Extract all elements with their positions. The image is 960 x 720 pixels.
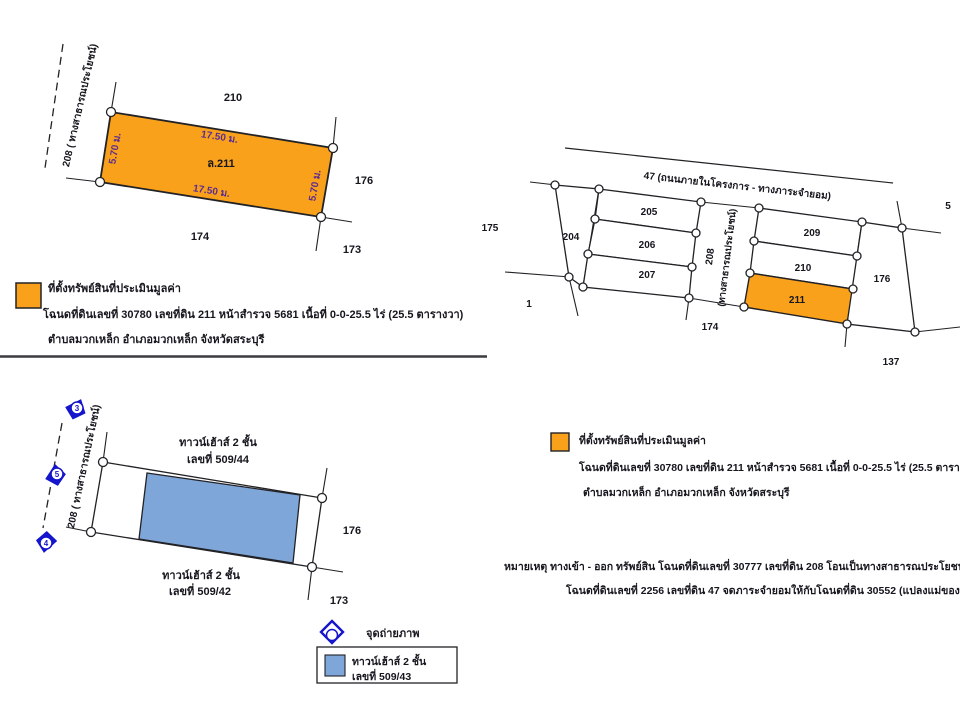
survey-marker-circle: [697, 198, 705, 206]
neighbor-210: 210: [224, 92, 242, 104]
location-line: ตำบลมวกเหล็ก อำเภอมวกเหล็ก จังหวัดสระบุร…: [48, 332, 264, 347]
plot-diagrams-canvas: 208 ( ทางสาธารณประโยชน์) 17.50 ม. 17.50 …: [0, 0, 960, 720]
survey-marker-circle: [107, 108, 116, 117]
map-label-5: 5: [945, 201, 951, 212]
orange-swatch: [551, 433, 569, 451]
house-top-line1: ทาวน์เฮ้าส์ 2 ชั้น: [179, 434, 257, 449]
map-label-175: 175: [482, 223, 499, 234]
legend-left: ที่ตั้งทรัพย์สินที่ประเมินมูลค่า โฉนดที่…: [0, 280, 487, 357]
survey-marker-circle: [849, 285, 857, 293]
neighbor-173: 173: [343, 244, 361, 256]
townhouse-legend-line1: ทาวน์เฮ้าส์ 2 ชั้น: [352, 653, 427, 668]
map-label-1: 1: [526, 299, 532, 310]
neighbor-176: 176: [355, 175, 373, 187]
map-label-207: 207: [639, 270, 656, 281]
map-label-174: 174: [702, 322, 719, 333]
map-label-206: 206: [639, 240, 656, 251]
parcel-id-label: ล.211: [207, 158, 235, 170]
survey-marker-circle: [584, 250, 592, 258]
survey-tick: [316, 217, 321, 251]
remark-note: หมายเหตุ ทางเข้า - ออก ทรัพย์สิน โฉนดที่…: [504, 558, 960, 597]
survey-tick: [902, 228, 941, 233]
survey-marker-circle: [329, 144, 338, 153]
photo-point-marker-5: 5: [44, 463, 67, 487]
survey-marker-circle: [96, 178, 105, 187]
neighbor-176: 176: [343, 525, 361, 537]
marker-number: 5: [55, 470, 60, 479]
road-208-top-crossing: [701, 202, 759, 208]
note-line-2: โฉนดที่ดินเลขที่ 2256 เลขที่ดิน 47 จดภาร…: [565, 582, 960, 597]
road-208-name: (ทางสาธารณประโยชน์): [715, 208, 739, 307]
neighbor-174: 174: [191, 231, 210, 243]
deed-info-line: โฉนดที่ดินเลขที่ 30780 เลขที่ดิน 211 หน้…: [42, 306, 464, 321]
legend-bottom: จุดถ่ายภาพ ทาวน์เฮ้าส์ 2 ชั้น เลขที่ 509…: [317, 621, 457, 683]
survey-marker-circle: [551, 181, 559, 189]
survey-marker-circle: [591, 215, 599, 223]
road-208-number: 208: [704, 247, 717, 265]
marker-circle: [327, 630, 338, 641]
marker-number: 3: [75, 404, 80, 413]
legend-title: ที่ตั้งทรัพย์สินที่ประเมินมูลค่า: [48, 280, 181, 296]
road-47-line: [565, 148, 893, 183]
townhouse-building-footprint: [139, 473, 300, 563]
survey-marker-circle: [911, 328, 919, 336]
survey-marker-circle: [308, 563, 317, 572]
photo-point-label: จุดถ่ายภาพ: [366, 628, 420, 641]
house-bottom-line1: ทาวน์เฮ้าส์ 2 ชั้น: [162, 567, 240, 582]
public-road-dashed-line: [45, 44, 63, 168]
blue-swatch: [325, 655, 345, 676]
note-line-1: หมายเหตุ ทางเข้า - ออก ทรัพย์สิน โฉนดที่…: [504, 558, 960, 574]
photo-point-marker-3: 3: [62, 394, 90, 423]
map-label-210: 210: [795, 263, 812, 274]
survey-marker-circle: [565, 273, 573, 281]
survey-tick: [505, 272, 570, 277]
photo-point-legend-icon: [321, 621, 343, 643]
survey-marker-circle: [692, 229, 700, 237]
orange-swatch: [16, 283, 41, 308]
survey-marker-circle: [746, 269, 754, 277]
house-bottom-line2: เลขที่ 509/42: [169, 583, 231, 598]
deed-info-line: โฉนดที่ดินเลขที่ 30780 เลขที่ดิน 211 หน้…: [578, 459, 960, 474]
survey-marker-circle: [843, 320, 851, 328]
survey-marker-circle: [87, 528, 96, 537]
location-line: ตำบลมวกเหล็ก อำเภอมวกเหล็ก จังหวัดสระบุร…: [583, 485, 790, 500]
house-top-line2: เลขที่ 509/44: [187, 451, 250, 466]
survey-marker-circle: [685, 294, 693, 302]
marker-number: 4: [44, 539, 49, 548]
detail-plot-diagram: 208 ( ทางสาธารณประโยชน์) 17.50 ม. 17.50 …: [45, 42, 373, 256]
survey-marker-circle: [688, 263, 696, 271]
map-label-205: 205: [641, 207, 658, 218]
detail-road-label: 208 ( ทางสาธารณประโยชน์): [59, 42, 100, 168]
map-label-209: 209: [804, 228, 821, 239]
map-label-137: 137: [883, 357, 900, 368]
map-label-211: 211: [789, 295, 806, 306]
survey-marker-circle: [579, 283, 587, 291]
survey-marker-circle: [750, 237, 758, 245]
survey-marker-circle: [740, 303, 748, 311]
map-label-204: 204: [563, 232, 580, 243]
photo-point-marker-4: 4: [34, 529, 59, 554]
townhouse-legend-line2: เลขที่ 509/43: [352, 668, 411, 683]
survey-marker-circle: [318, 494, 327, 503]
appraisal-plot-page: 208 ( ทางสาธารณประโยชน์) 17.50 ม. 17.50 …: [0, 0, 960, 720]
map-label-176: 176: [874, 274, 891, 285]
survey-marker-circle: [755, 204, 763, 212]
survey-marker-circle: [898, 224, 906, 232]
survey-marker-circle: [595, 185, 603, 193]
overview-map: 47 (ถนนภายในโครงการ - ทางภาระจำยอม): [482, 148, 960, 368]
legend-right: ที่ตั้งทรัพย์สินที่ประเมินมูลค่า โฉนดที่…: [551, 432, 960, 500]
townhouse-plot-diagram: 208 ( ทางสาธารณประโยชน์) 3 5 4 ทาวน์: [34, 394, 361, 607]
survey-marker-circle: [99, 458, 108, 467]
survey-marker-circle: [858, 218, 866, 226]
survey-marker-circle: [317, 213, 326, 222]
survey-tick: [915, 327, 960, 332]
legend-title: ที่ตั้งทรัพย์สินที่ประเมินมูลค่า: [579, 432, 706, 448]
survey-marker-circle: [853, 252, 861, 260]
neighbor-173: 173: [330, 595, 348, 607]
